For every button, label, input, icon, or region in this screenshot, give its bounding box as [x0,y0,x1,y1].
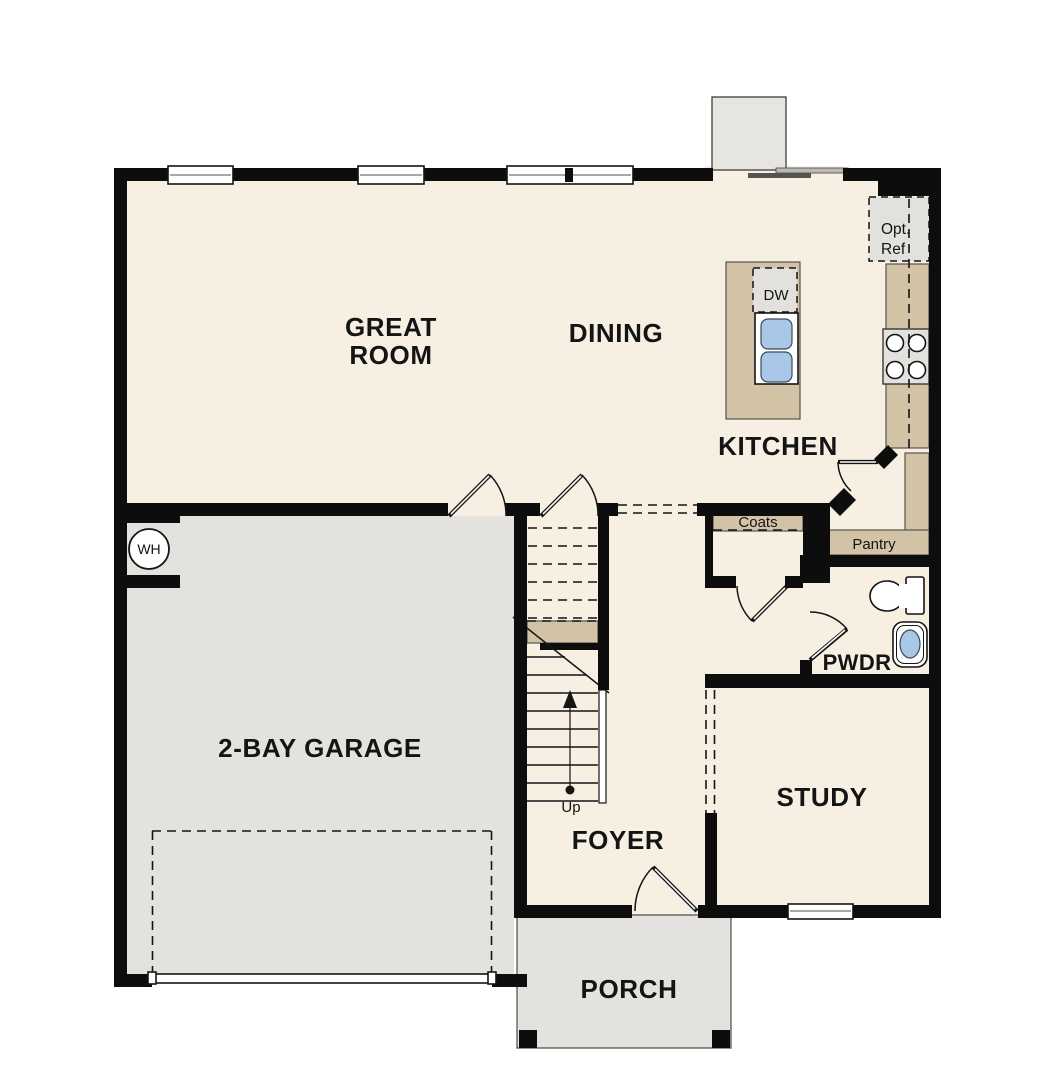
wall-right-outer [929,168,941,918]
wall-coats-stub-left [705,576,736,588]
porch-label: PORCH [581,974,678,1004]
kitchen-label: KITCHEN [718,431,838,461]
floor-plan: WH [0,0,1041,1069]
porch-post-right [712,1030,730,1048]
toilet-tank [906,577,924,614]
wall-garage-bottom-right [492,974,527,987]
foyer-label: FOYER [572,825,665,855]
stove [883,329,929,384]
wall-garage-bottom-left [114,974,152,987]
wall-pantry-powder [800,555,941,567]
wall-wh-top [114,510,180,523]
stair-landing [527,621,598,643]
pedestal-sink [893,622,927,667]
window-mullion [565,168,573,182]
coats-label: Coats [738,514,777,531]
wall-bottom-mid [698,905,788,918]
wall-top-right [843,168,941,181]
wall-stub-stair [597,503,618,516]
dining-label: DINING [569,318,664,348]
water-heater: WH [129,529,169,569]
water-heater-label: WH [137,541,160,557]
fireplace [712,97,848,178]
wall-hall-study [705,674,941,688]
dishwasher-label: DW [764,287,790,304]
wall-study-left [705,813,717,905]
wall-bottom-foyer [527,905,632,918]
fireplace-hearth-lower [748,173,811,178]
garage-label: 2-BAY GARAGE [218,733,422,763]
wall-powder-stub-top [800,567,812,583]
fireplace-hearth-upper [776,168,848,173]
arrow-dot [566,786,575,795]
garage-door-cap-left [148,972,156,984]
porch-post-left [519,1030,537,1048]
wall-stair-right [598,516,609,690]
window [358,166,424,184]
toilet-bowl [870,581,904,611]
up-label: Up [561,799,580,816]
great-room-label-line2: ROOM [349,340,432,370]
burner [909,335,926,352]
opt-ref-label-line1: Opt. [881,221,910,238]
sink-basin-bottom [761,352,792,382]
opt-ref-label-line2: Ref [881,241,906,258]
wall-bottom-study [853,905,941,918]
pantry-label: Pantry [852,536,896,553]
garage-door-panel [152,974,492,983]
sink-bowl [900,630,920,658]
toilet-join [899,584,908,608]
wall-wh-bottom [114,575,180,588]
pantry-shelf-right [905,453,929,533]
floor-plan-svg: WH [0,0,1041,1069]
powder-label: PWDR [823,650,892,675]
window-double [507,166,633,184]
window-study [788,904,853,919]
study-label: STUDY [776,782,867,812]
sink-basin-top [761,319,792,349]
window [168,166,233,184]
stair-handrail [599,690,606,803]
burner [909,362,926,379]
burner [887,335,904,352]
fireplace-box [712,97,786,170]
garage-door-cap-right [488,972,496,984]
wall-garage-foyer [514,503,527,918]
great-room-label-line1: GREAT [345,312,437,342]
burner [887,362,904,379]
